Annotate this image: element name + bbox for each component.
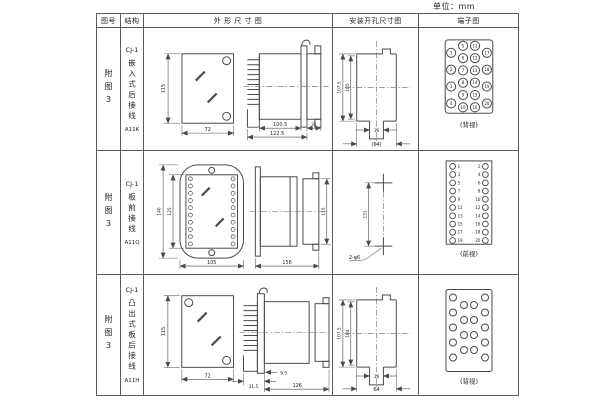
unit-label: 单位：mm — [433, 1, 475, 12]
dim-label: 140 — [157, 207, 163, 215]
svg-text:5: 5 — [458, 180, 461, 185]
outline-drawing-a11q: 140 125 105 — [144, 151, 332, 274]
svg-text:15: 15 — [458, 221, 464, 226]
dim-label: (64) — [371, 142, 381, 148]
dim-label: 125 — [167, 207, 173, 215]
outline-cell-row1: 115 72 — [144, 28, 333, 151]
dim-label: 115 — [161, 84, 167, 93]
svg-text:11: 11 — [458, 205, 464, 210]
spec-sheet-page: 单位：mm 图号 结构 外 形 尺 寸 图 安装开孔尺寸图 端子图 附图3 CJ… — [0, 0, 600, 400]
svg-text:18: 18 — [484, 67, 490, 72]
struct-desc: 凸出式板后接线 — [127, 299, 138, 373]
mounting-cell-row2: 131 2-φ6 — [333, 151, 419, 275]
svg-text:9: 9 — [462, 93, 465, 98]
svg-text:19: 19 — [458, 238, 464, 243]
svg-text:4: 4 — [478, 172, 481, 177]
svg-text:2: 2 — [478, 164, 481, 169]
svg-text:20: 20 — [484, 101, 490, 106]
side-view: 156 115 — [249, 167, 330, 269]
dim-label: 115 — [321, 207, 327, 215]
model-label: CJ-1 — [126, 46, 139, 54]
outline-cell-row3: 115 72 9.5 — [144, 275, 333, 395]
svg-text:16: 16 — [475, 221, 481, 226]
fig-cell-row2: 附图3 — [97, 151, 121, 275]
dim-label: 105 — [345, 83, 351, 91]
mounting-drawing-a11q: 131 2-φ6 — [333, 151, 418, 274]
model-code: A11K — [125, 127, 139, 133]
dim-label: 9.5 — [280, 370, 287, 376]
dim-label: 107.5 — [336, 327, 342, 339]
model-code: A11H — [125, 378, 140, 384]
fig-label: 附图3 — [103, 69, 114, 109]
terminal-drawing-a11q: 1357911131517192468101214161820 (前视) — [419, 151, 518, 274]
terminal-drawing-a11k: 1234567891011121314151617181920 (背视) — [419, 28, 518, 150]
svg-text:4: 4 — [450, 101, 453, 106]
struct-cell-row2: CJ-1 板前接线 A11Q — [121, 151, 144, 275]
svg-text:8: 8 — [462, 80, 465, 85]
svg-text:12: 12 — [475, 205, 481, 210]
dim-label: 126 — [292, 383, 301, 389]
front-view: 115 72 — [161, 296, 234, 383]
struct-desc: 板前接线 — [127, 193, 138, 235]
svg-text:6: 6 — [462, 56, 465, 61]
terminal-drawing-a11h: (背视) — [419, 275, 518, 395]
mounting-cell-row1: 107.5 105 16 (64) — [333, 28, 419, 151]
svg-text:16: 16 — [472, 105, 478, 110]
svg-text:9: 9 — [458, 197, 461, 202]
struct-desc: 嵌入式后接线 — [127, 59, 138, 122]
struct-cell-row1: CJ-1 嵌入式后接线 A11K — [121, 28, 144, 151]
header-terminal: 端子图 — [419, 14, 518, 28]
panel-cutout: 107.5 104 16 64 — [336, 287, 410, 393]
hole-spec-label: 2-φ6 — [349, 255, 360, 261]
terminal-grid — [450, 294, 489, 361]
outline-drawing-a11h: 115 72 9.5 — [144, 275, 332, 395]
svg-text:13: 13 — [472, 68, 478, 73]
fig-cell-row3: 附图3 — [97, 275, 121, 395]
terminal-dots — [188, 177, 235, 246]
header-fig: 图号 — [97, 14, 121, 28]
view-caption: (前视) — [460, 249, 478, 258]
terminal-cell-row3: (背视) — [419, 275, 518, 395]
dim-label: 104 — [345, 329, 351, 337]
mounting-drawing-a11h: 107.5 104 16 64 — [333, 275, 418, 395]
outline-cell-row2: 140 125 105 — [144, 151, 333, 275]
mounting-drawing-a11k: 107.5 105 16 (64) — [333, 28, 418, 150]
svg-text:8: 8 — [478, 189, 481, 194]
dim-label: 115 — [161, 327, 167, 336]
svg-text:19: 19 — [484, 84, 490, 89]
terminal-grid: 1357911131517192468101214161820 — [450, 163, 488, 243]
model-label: CJ-1 — [126, 286, 139, 294]
terminal-grid: 1234567891011121314151617181920 — [447, 41, 492, 112]
view-caption: (背视) — [460, 377, 478, 386]
view-caption: (背视) — [460, 120, 478, 129]
dim-label: 35 — [311, 122, 317, 128]
svg-text:3: 3 — [450, 84, 453, 89]
terminal-cell-row2: 1357911131517192468101214161820 (前视) — [419, 151, 518, 275]
dim-label: 100.5 — [273, 122, 287, 128]
side-view: 9.5 31.5 126 — [232, 288, 331, 392]
svg-text:5: 5 — [462, 43, 465, 48]
dim-label: 105 — [207, 260, 216, 266]
svg-text:15: 15 — [472, 93, 478, 98]
front-view: 115 72 — [161, 54, 233, 136]
svg-text:10: 10 — [461, 105, 467, 110]
header-struct: 结构 — [121, 14, 144, 28]
dim-label: 64 — [373, 387, 379, 393]
svg-text:18: 18 — [475, 230, 481, 235]
dim-label: 156 — [282, 260, 291, 266]
dim-label: 131 — [363, 210, 369, 218]
dim-label: 16 — [374, 128, 380, 134]
terminal-cell-row1: 1234567891011121314151617181920 (背视) — [419, 28, 518, 151]
dim-label: 31.5 — [249, 384, 259, 390]
svg-text:12: 12 — [472, 56, 478, 61]
svg-text:14: 14 — [475, 213, 481, 218]
header-outline: 外 形 尺 寸 图 — [144, 14, 333, 28]
spec-table: 图号 结构 外 形 尺 寸 图 安装开孔尺寸图 端子图 附图3 CJ-1 嵌入式… — [96, 13, 519, 396]
dim-label: 107.5 — [336, 81, 342, 93]
svg-text:11: 11 — [472, 43, 478, 48]
dim-label: 16 — [374, 374, 380, 380]
fig-label: 附图3 — [103, 193, 114, 233]
svg-text:17: 17 — [458, 230, 464, 235]
model-code: A11Q — [124, 240, 139, 246]
model-label: CJ-1 — [126, 180, 139, 188]
fig-label: 附图3 — [103, 315, 114, 355]
hole-marks: 131 2-φ6 — [349, 174, 392, 261]
svg-text:6: 6 — [478, 180, 481, 185]
side-view: 100.5 35 122.5 — [243, 40, 328, 140]
mounting-cell-row3: 107.5 104 16 64 — [333, 275, 419, 395]
svg-text:13: 13 — [458, 213, 464, 218]
svg-text:1: 1 — [450, 50, 453, 55]
svg-text:7: 7 — [458, 189, 461, 194]
struct-cell-row3: CJ-1 凸出式板后接线 A11H — [121, 275, 144, 395]
header-mounting: 安装开孔尺寸图 — [333, 14, 419, 28]
dim-label: 72 — [204, 373, 210, 379]
front-view: 140 125 105 — [157, 165, 244, 269]
svg-text:14: 14 — [472, 80, 478, 85]
outline-drawing-a11k: 115 72 — [144, 28, 332, 150]
svg-text:7: 7 — [462, 68, 465, 73]
svg-text:1: 1 — [458, 164, 461, 169]
svg-text:20: 20 — [475, 238, 481, 243]
svg-text:2: 2 — [450, 67, 453, 72]
panel-cutout: 107.5 105 16 (64) — [336, 41, 410, 148]
dim-label: 72 — [205, 127, 211, 133]
dim-label: 122.5 — [270, 131, 284, 137]
fig-cell-row1: 附图3 — [97, 28, 121, 151]
svg-text:3: 3 — [458, 172, 461, 177]
svg-text:10: 10 — [475, 197, 481, 202]
svg-text:17: 17 — [484, 50, 490, 55]
